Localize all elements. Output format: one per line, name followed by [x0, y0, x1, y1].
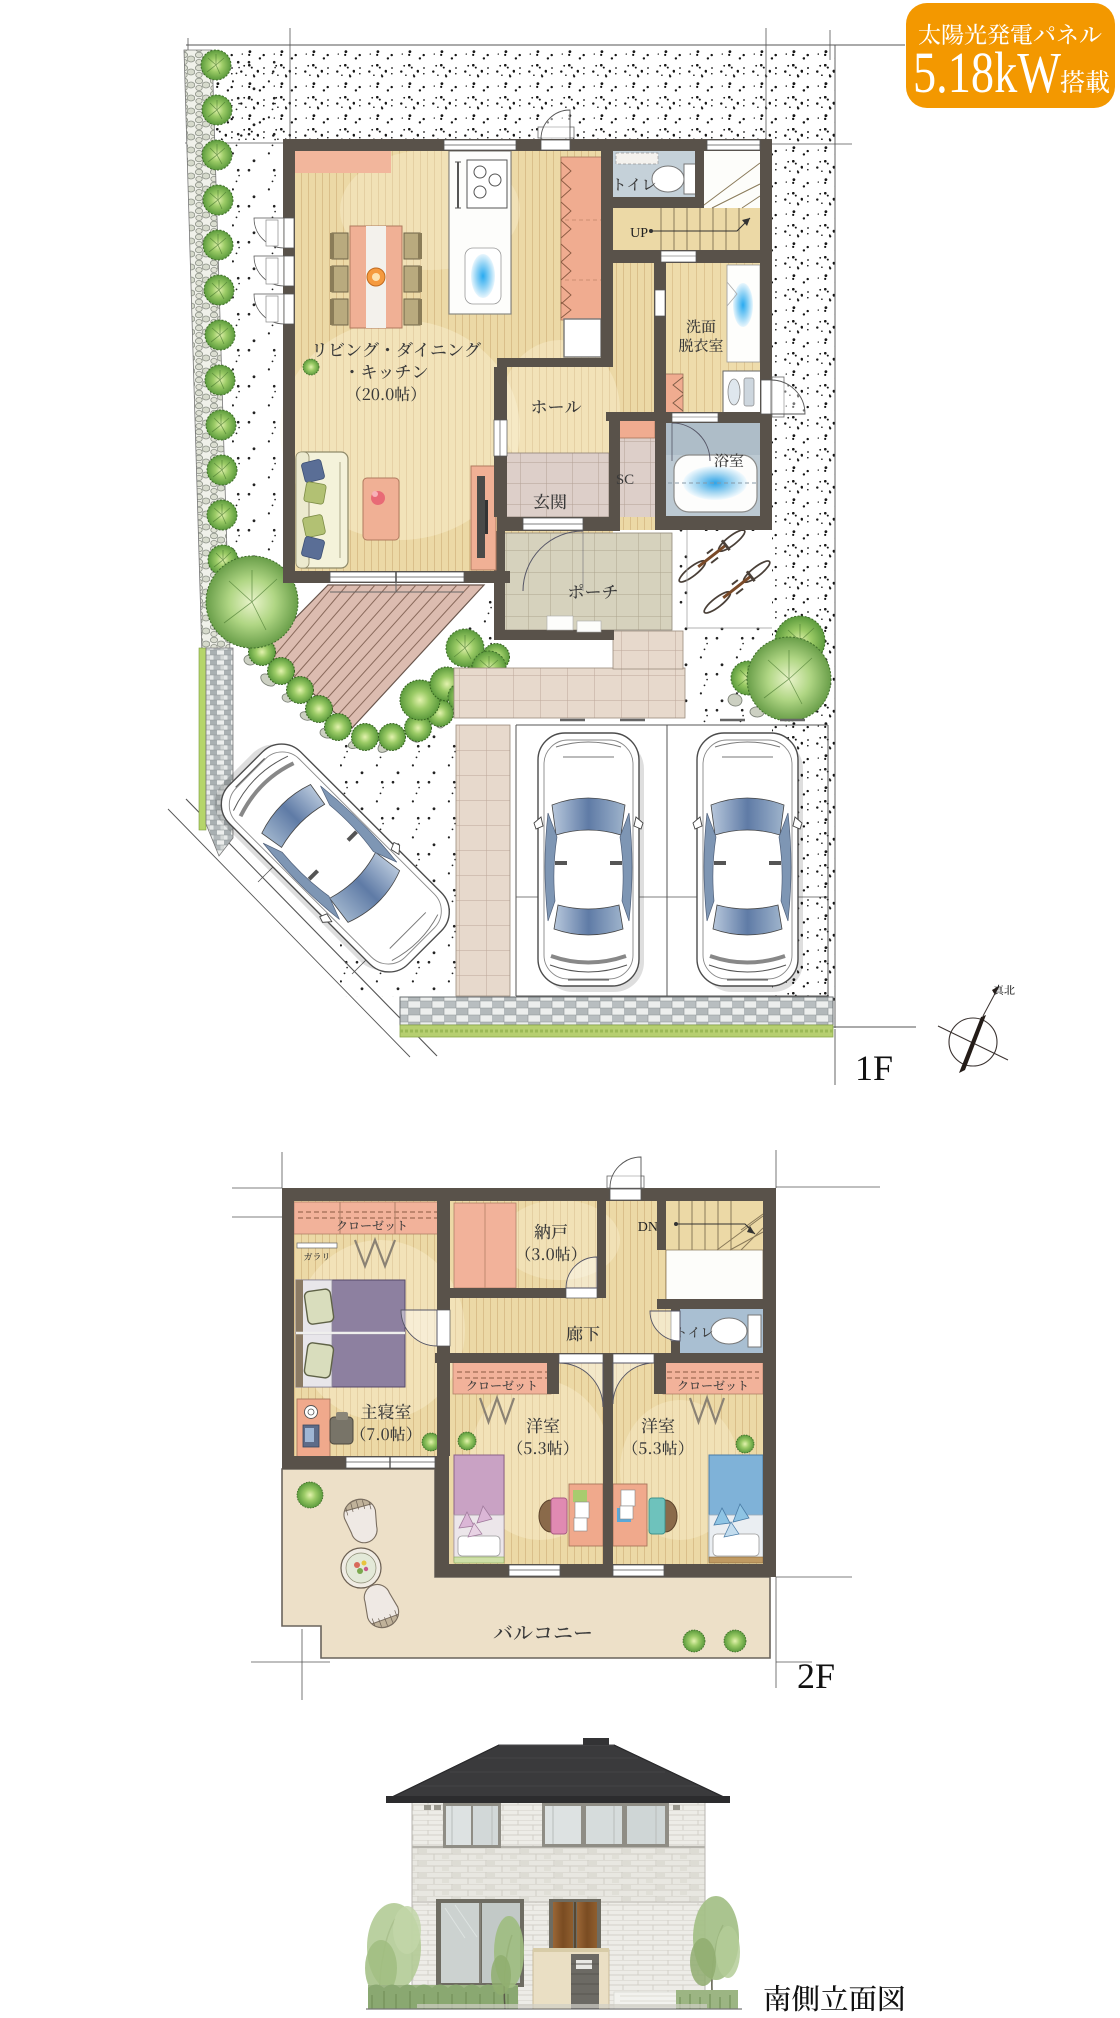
svg-text:UP: UP: [630, 226, 648, 241]
svg-text:5.18kW: 5.18kW: [913, 40, 1061, 105]
svg-text:1F: 1F: [855, 1048, 893, 1088]
svg-text:SC: SC: [616, 472, 634, 488]
svg-text:DN: DN: [638, 1220, 658, 1235]
svg-text:2F: 2F: [797, 1656, 835, 1696]
